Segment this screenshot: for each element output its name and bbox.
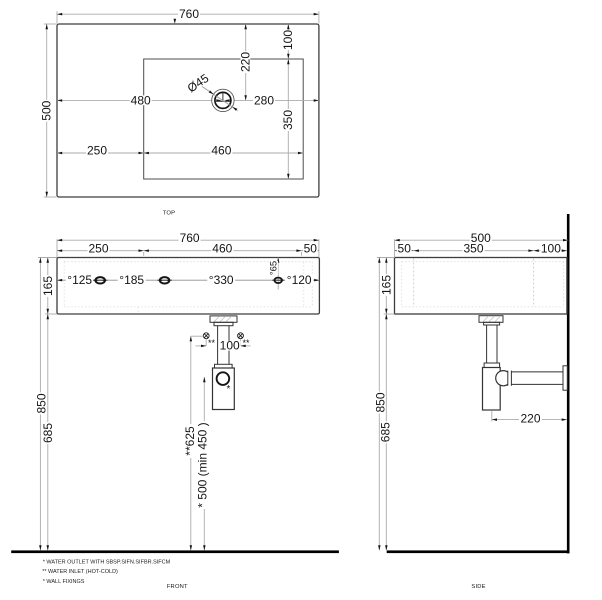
svg-text:850: 850	[35, 393, 49, 413]
svg-text:* WATER OUTLET WITH SBSP.SIFN.: * WATER OUTLET WITH SBSP.SIFN.SIFBR.SIFC…	[43, 560, 171, 566]
svg-text:100: 100	[541, 242, 561, 256]
svg-text:850: 850	[373, 392, 387, 412]
svg-text:250: 250	[88, 242, 108, 256]
svg-text:°125: °125	[67, 273, 92, 287]
svg-text:350: 350	[281, 110, 295, 130]
svg-text:760: 760	[179, 7, 199, 21]
svg-text:°185: °185	[119, 273, 144, 287]
svg-text:°330: °330	[209, 273, 234, 287]
svg-text:460: 460	[211, 144, 231, 158]
svg-text:*: *	[226, 384, 230, 395]
svg-text:**: **	[208, 338, 216, 348]
svg-text:165: 165	[41, 276, 55, 296]
svg-text:TOP: TOP	[163, 210, 175, 216]
svg-text:* WALL FIXINGS: * WALL FIXINGS	[43, 579, 85, 585]
svg-text:SIDE: SIDE	[471, 584, 485, 590]
svg-text:°65: °65	[269, 261, 280, 275]
svg-text:°120: °120	[287, 273, 312, 287]
svg-text:460: 460	[212, 242, 232, 256]
svg-text:760: 760	[180, 231, 200, 245]
svg-text:480: 480	[131, 93, 151, 107]
svg-text:280: 280	[254, 93, 274, 107]
svg-text:685: 685	[41, 423, 55, 443]
svg-text:220: 220	[238, 52, 252, 72]
svg-text:685: 685	[378, 422, 392, 442]
svg-text:220: 220	[520, 412, 540, 426]
svg-text:165: 165	[380, 275, 394, 295]
svg-text:** WATER INLET (HOT-COLD): ** WATER INLET (HOT-COLD)	[42, 569, 118, 575]
svg-text:350: 350	[463, 242, 483, 256]
svg-text:50: 50	[304, 242, 318, 256]
svg-text:50: 50	[398, 242, 412, 256]
svg-text:250: 250	[87, 144, 107, 158]
svg-text:100: 100	[220, 339, 240, 353]
svg-text:500: 500	[40, 100, 54, 120]
svg-text:* 500 (min 450 ): * 500 (min 450 )	[195, 422, 209, 507]
svg-text:100: 100	[281, 30, 295, 50]
svg-text:FRONT: FRONT	[167, 584, 188, 590]
